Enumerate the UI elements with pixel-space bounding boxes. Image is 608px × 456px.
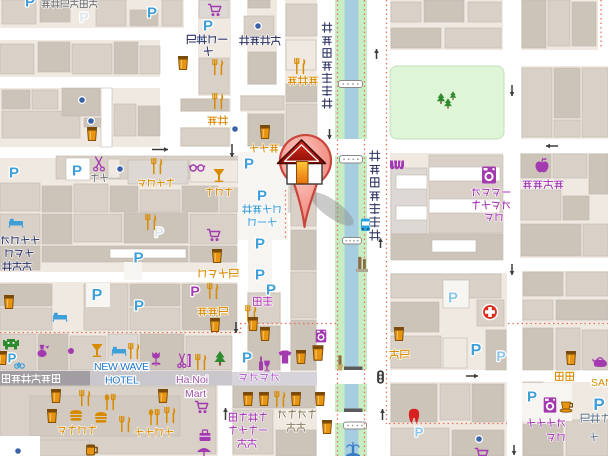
svg-text:P: P (593, 395, 604, 414)
svg-text:P: P (92, 287, 103, 304)
svg-text:P: P (154, 224, 163, 240)
svg-text:P: P (147, 4, 157, 21)
svg-text:P: P (255, 266, 265, 283)
svg-text:P: P (257, 187, 267, 204)
svg-text:P: P (79, 9, 88, 25)
svg-text:P: P (72, 162, 82, 179)
svg-text:P: P (527, 388, 537, 405)
svg-text:P: P (190, 283, 199, 299)
svg-text:Ha.Noi: Ha.Noi (176, 374, 208, 386)
svg-text:P: P (8, 351, 17, 366)
svg-text:P: P (448, 289, 458, 306)
svg-text:P: P (415, 425, 424, 440)
svg-text:P: P (203, 17, 213, 34)
svg-text:P: P (9, 164, 19, 181)
svg-text:P: P (242, 349, 252, 366)
svg-text:P: P (496, 348, 505, 364)
svg-text:Mart: Mart (185, 388, 206, 400)
svg-text:P: P (471, 342, 482, 359)
svg-text:P: P (255, 235, 265, 252)
svg-text:SAN: SAN (591, 377, 608, 389)
svg-text:P: P (134, 297, 144, 314)
svg-text:HOTEL: HOTEL (105, 375, 139, 387)
svg-text:P: P (25, 0, 35, 10)
svg-text:P: P (244, 155, 254, 172)
svg-text:P: P (133, 249, 143, 266)
svg-text:NEW WAVE: NEW WAVE (94, 361, 149, 373)
